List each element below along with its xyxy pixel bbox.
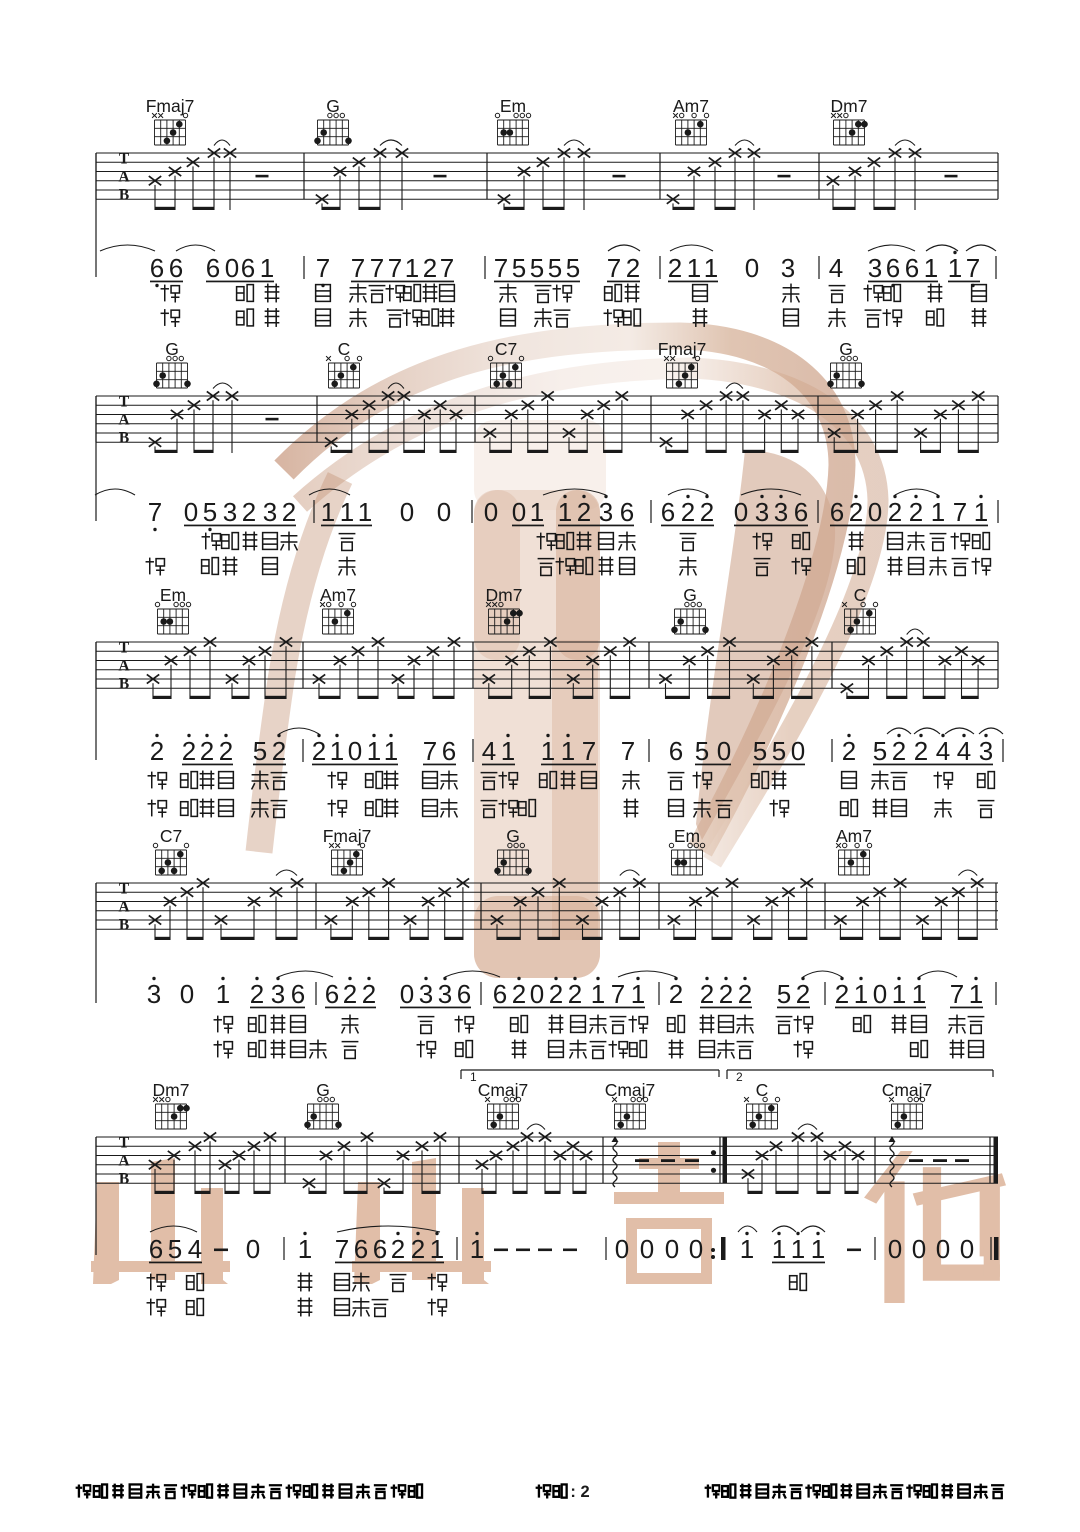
svg-text:6: 6 xyxy=(493,979,507,1009)
svg-text:Dm7: Dm7 xyxy=(486,585,523,605)
svg-text:1: 1 xyxy=(358,497,372,527)
svg-text:B: B xyxy=(119,1171,129,1188)
svg-text:2: 2 xyxy=(736,1070,743,1084)
svg-text:1: 1 xyxy=(631,979,645,1009)
svg-text:1: 1 xyxy=(591,979,605,1009)
svg-text:6: 6 xyxy=(886,253,900,283)
svg-text:6: 6 xyxy=(457,979,471,1009)
svg-text:1: 1 xyxy=(541,736,555,766)
svg-text:1: 1 xyxy=(367,736,381,766)
svg-text:2: 2 xyxy=(668,253,682,283)
svg-text:3: 3 xyxy=(263,497,277,527)
svg-text:1: 1 xyxy=(470,1070,477,1084)
svg-text:0: 0 xyxy=(936,1234,950,1264)
svg-text:1: 1 xyxy=(974,497,988,527)
svg-text:1: 1 xyxy=(969,979,983,1009)
svg-text:C7: C7 xyxy=(495,339,517,359)
svg-text:5: 5 xyxy=(772,736,786,766)
svg-text:0: 0 xyxy=(484,497,498,527)
svg-text:3: 3 xyxy=(223,497,237,527)
svg-text:0: 0 xyxy=(400,497,414,527)
svg-text:6: 6 xyxy=(169,253,183,283)
svg-text:6: 6 xyxy=(325,979,339,1009)
svg-text:0: 0 xyxy=(225,253,239,283)
svg-text:6: 6 xyxy=(291,979,305,1009)
svg-text:1: 1 xyxy=(470,1234,484,1264)
svg-text:5: 5 xyxy=(203,497,217,527)
svg-text:5: 5 xyxy=(253,736,267,766)
svg-text:7: 7 xyxy=(388,253,402,283)
svg-text:2: 2 xyxy=(719,979,733,1009)
svg-text:5: 5 xyxy=(695,736,709,766)
svg-text:3: 3 xyxy=(419,979,433,1009)
svg-text:1: 1 xyxy=(298,1234,312,1264)
svg-text:T: T xyxy=(119,1135,130,1152)
svg-text:A: A xyxy=(118,899,130,916)
svg-text:6: 6 xyxy=(794,497,808,527)
svg-text:6: 6 xyxy=(149,1234,163,1264)
svg-text:A: A xyxy=(118,412,130,429)
svg-text:: 2: : 2 xyxy=(570,1483,589,1501)
svg-text:2: 2 xyxy=(272,736,286,766)
svg-text:0: 0 xyxy=(912,1234,926,1264)
svg-text:7: 7 xyxy=(582,736,596,766)
svg-text:1: 1 xyxy=(704,253,718,283)
svg-text:7: 7 xyxy=(611,979,625,1009)
svg-text:0: 0 xyxy=(873,979,887,1009)
svg-text:C: C xyxy=(338,339,351,359)
svg-text:7: 7 xyxy=(966,253,980,283)
svg-text:7: 7 xyxy=(494,253,508,283)
svg-text:6: 6 xyxy=(373,1234,387,1264)
svg-text:1: 1 xyxy=(948,253,962,283)
svg-text:0: 0 xyxy=(689,1234,703,1264)
svg-text:0: 0 xyxy=(348,736,362,766)
svg-text:B: B xyxy=(119,187,129,204)
svg-text:0: 0 xyxy=(640,1234,654,1264)
svg-text:1: 1 xyxy=(216,979,230,1009)
svg-text:A: A xyxy=(118,658,130,675)
svg-text:1: 1 xyxy=(430,1234,444,1264)
svg-text:A: A xyxy=(118,169,130,186)
svg-text:5: 5 xyxy=(548,253,562,283)
svg-text:3: 3 xyxy=(774,497,788,527)
svg-text:2: 2 xyxy=(892,736,906,766)
svg-text:6: 6 xyxy=(830,497,844,527)
svg-text:5: 5 xyxy=(168,1234,182,1264)
svg-text:0: 0 xyxy=(437,497,451,527)
svg-text:Am7: Am7 xyxy=(320,585,356,605)
svg-text:2: 2 xyxy=(282,497,296,527)
svg-text:2: 2 xyxy=(362,979,376,1009)
svg-text:0: 0 xyxy=(180,979,194,1009)
svg-text:1: 1 xyxy=(558,497,572,527)
svg-text:2: 2 xyxy=(182,736,196,766)
svg-text:7: 7 xyxy=(423,736,437,766)
svg-text:Fmaj7: Fmaj7 xyxy=(658,339,707,359)
svg-text:T: T xyxy=(119,394,130,411)
svg-text:2: 2 xyxy=(568,979,582,1009)
svg-text:G: G xyxy=(506,826,520,846)
svg-text:4: 4 xyxy=(829,253,843,283)
svg-text:G: G xyxy=(316,1080,330,1100)
svg-text:2: 2 xyxy=(842,736,856,766)
svg-text:0: 0 xyxy=(246,1234,260,1264)
svg-text:6: 6 xyxy=(661,497,675,527)
svg-text:0: 0 xyxy=(734,497,748,527)
svg-text:1: 1 xyxy=(892,979,906,1009)
svg-text:Fmaj7: Fmaj7 xyxy=(323,826,372,846)
svg-text:0: 0 xyxy=(868,497,882,527)
svg-text:2: 2 xyxy=(849,497,863,527)
svg-text:2: 2 xyxy=(250,979,264,1009)
svg-text:A: A xyxy=(118,1153,130,1170)
svg-text:2: 2 xyxy=(681,497,695,527)
svg-text:3: 3 xyxy=(755,497,769,527)
svg-text:2: 2 xyxy=(796,979,810,1009)
svg-text:T: T xyxy=(119,640,130,657)
svg-text:6: 6 xyxy=(442,736,456,766)
svg-text:1: 1 xyxy=(405,253,419,283)
svg-text:G: G xyxy=(839,339,853,359)
svg-text:1: 1 xyxy=(330,736,344,766)
svg-text:6: 6 xyxy=(354,1234,368,1264)
svg-text:0: 0 xyxy=(888,1234,902,1264)
svg-text:B: B xyxy=(119,430,129,447)
svg-text:T: T xyxy=(119,881,130,898)
svg-text:6: 6 xyxy=(150,253,164,283)
svg-text:1: 1 xyxy=(740,1234,754,1264)
svg-text:1: 1 xyxy=(340,497,354,527)
svg-text:2: 2 xyxy=(391,1234,405,1264)
svg-text:C: C xyxy=(854,585,867,605)
svg-text:1: 1 xyxy=(530,497,544,527)
svg-text:1: 1 xyxy=(260,253,274,283)
svg-text:6: 6 xyxy=(206,253,220,283)
svg-text:7: 7 xyxy=(316,253,330,283)
svg-text:1: 1 xyxy=(321,497,335,527)
svg-text:3: 3 xyxy=(599,497,613,527)
svg-text:1: 1 xyxy=(561,736,575,766)
svg-text:3: 3 xyxy=(781,253,795,283)
svg-text:5: 5 xyxy=(753,736,767,766)
svg-text:0: 0 xyxy=(791,736,805,766)
svg-text:G: G xyxy=(683,585,697,605)
svg-text:C7: C7 xyxy=(160,826,182,846)
svg-text:6: 6 xyxy=(241,253,255,283)
svg-text:0: 0 xyxy=(745,253,759,283)
svg-text:2: 2 xyxy=(700,979,714,1009)
svg-text:5: 5 xyxy=(873,736,887,766)
svg-text:2: 2 xyxy=(312,736,326,766)
svg-text:Am7: Am7 xyxy=(673,96,709,116)
svg-text:2: 2 xyxy=(219,736,233,766)
svg-text:2: 2 xyxy=(411,1234,425,1264)
svg-text:0: 0 xyxy=(960,1234,974,1264)
svg-text:5: 5 xyxy=(566,253,580,283)
svg-text:4: 4 xyxy=(188,1234,202,1264)
svg-text:7: 7 xyxy=(440,253,454,283)
svg-text:0: 0 xyxy=(665,1234,679,1264)
svg-text:0: 0 xyxy=(615,1234,629,1264)
svg-text:7: 7 xyxy=(950,979,964,1009)
svg-text:C: C xyxy=(756,1080,769,1100)
svg-text:1: 1 xyxy=(931,497,945,527)
svg-text:2: 2 xyxy=(626,253,640,283)
svg-text:2: 2 xyxy=(914,736,928,766)
svg-text:2: 2 xyxy=(577,497,591,527)
svg-text:3: 3 xyxy=(979,736,993,766)
svg-text:2: 2 xyxy=(200,736,214,766)
svg-text:6: 6 xyxy=(620,497,634,527)
svg-text:0: 0 xyxy=(717,736,731,766)
svg-text:3: 3 xyxy=(438,979,452,1009)
svg-text:2: 2 xyxy=(909,497,923,527)
svg-text:2: 2 xyxy=(888,497,902,527)
svg-text:2: 2 xyxy=(423,253,437,283)
svg-text:Dm7: Dm7 xyxy=(153,1080,190,1100)
svg-text:5: 5 xyxy=(777,979,791,1009)
svg-text:3: 3 xyxy=(147,979,161,1009)
svg-text:4: 4 xyxy=(936,736,950,766)
svg-text:2: 2 xyxy=(343,979,357,1009)
svg-text:4: 4 xyxy=(482,736,496,766)
svg-text:1: 1 xyxy=(811,1234,825,1264)
svg-text:Fmaj7: Fmaj7 xyxy=(146,96,195,116)
svg-text:0: 0 xyxy=(512,497,526,527)
svg-text:T: T xyxy=(119,151,130,168)
svg-text:7: 7 xyxy=(335,1234,349,1264)
svg-text:1: 1 xyxy=(687,253,701,283)
svg-text:2: 2 xyxy=(549,979,563,1009)
svg-text:5: 5 xyxy=(530,253,544,283)
svg-text:1: 1 xyxy=(854,979,868,1009)
svg-text:2: 2 xyxy=(242,497,256,527)
svg-text:2: 2 xyxy=(669,979,683,1009)
svg-text:0: 0 xyxy=(400,979,414,1009)
svg-text:2: 2 xyxy=(150,736,164,766)
svg-text:B: B xyxy=(119,917,129,934)
svg-text:7: 7 xyxy=(351,253,365,283)
svg-text:Am7: Am7 xyxy=(836,826,872,846)
svg-text:1: 1 xyxy=(791,1234,805,1264)
svg-text:G: G xyxy=(165,339,179,359)
svg-text:3: 3 xyxy=(868,253,882,283)
svg-text:1: 1 xyxy=(384,736,398,766)
svg-text:4: 4 xyxy=(957,736,971,766)
svg-text:G: G xyxy=(326,96,340,116)
svg-text:7: 7 xyxy=(148,497,162,527)
svg-text:7: 7 xyxy=(953,497,967,527)
svg-text:0: 0 xyxy=(184,497,198,527)
svg-text:B: B xyxy=(119,676,129,693)
svg-text:7: 7 xyxy=(370,253,384,283)
svg-text:6: 6 xyxy=(905,253,919,283)
svg-text:1: 1 xyxy=(772,1234,786,1264)
svg-text:3: 3 xyxy=(271,979,285,1009)
svg-text:6: 6 xyxy=(669,736,683,766)
svg-text:2: 2 xyxy=(700,497,714,527)
svg-text:2: 2 xyxy=(738,979,752,1009)
svg-text:2: 2 xyxy=(835,979,849,1009)
svg-text:0: 0 xyxy=(530,979,544,1009)
svg-text:1: 1 xyxy=(912,979,926,1009)
svg-text:7: 7 xyxy=(607,253,621,283)
svg-text:1: 1 xyxy=(924,253,938,283)
svg-text:7: 7 xyxy=(621,736,635,766)
svg-text:Dm7: Dm7 xyxy=(831,96,868,116)
svg-text:5: 5 xyxy=(512,253,526,283)
svg-text:1: 1 xyxy=(501,736,515,766)
svg-text:2: 2 xyxy=(512,979,526,1009)
